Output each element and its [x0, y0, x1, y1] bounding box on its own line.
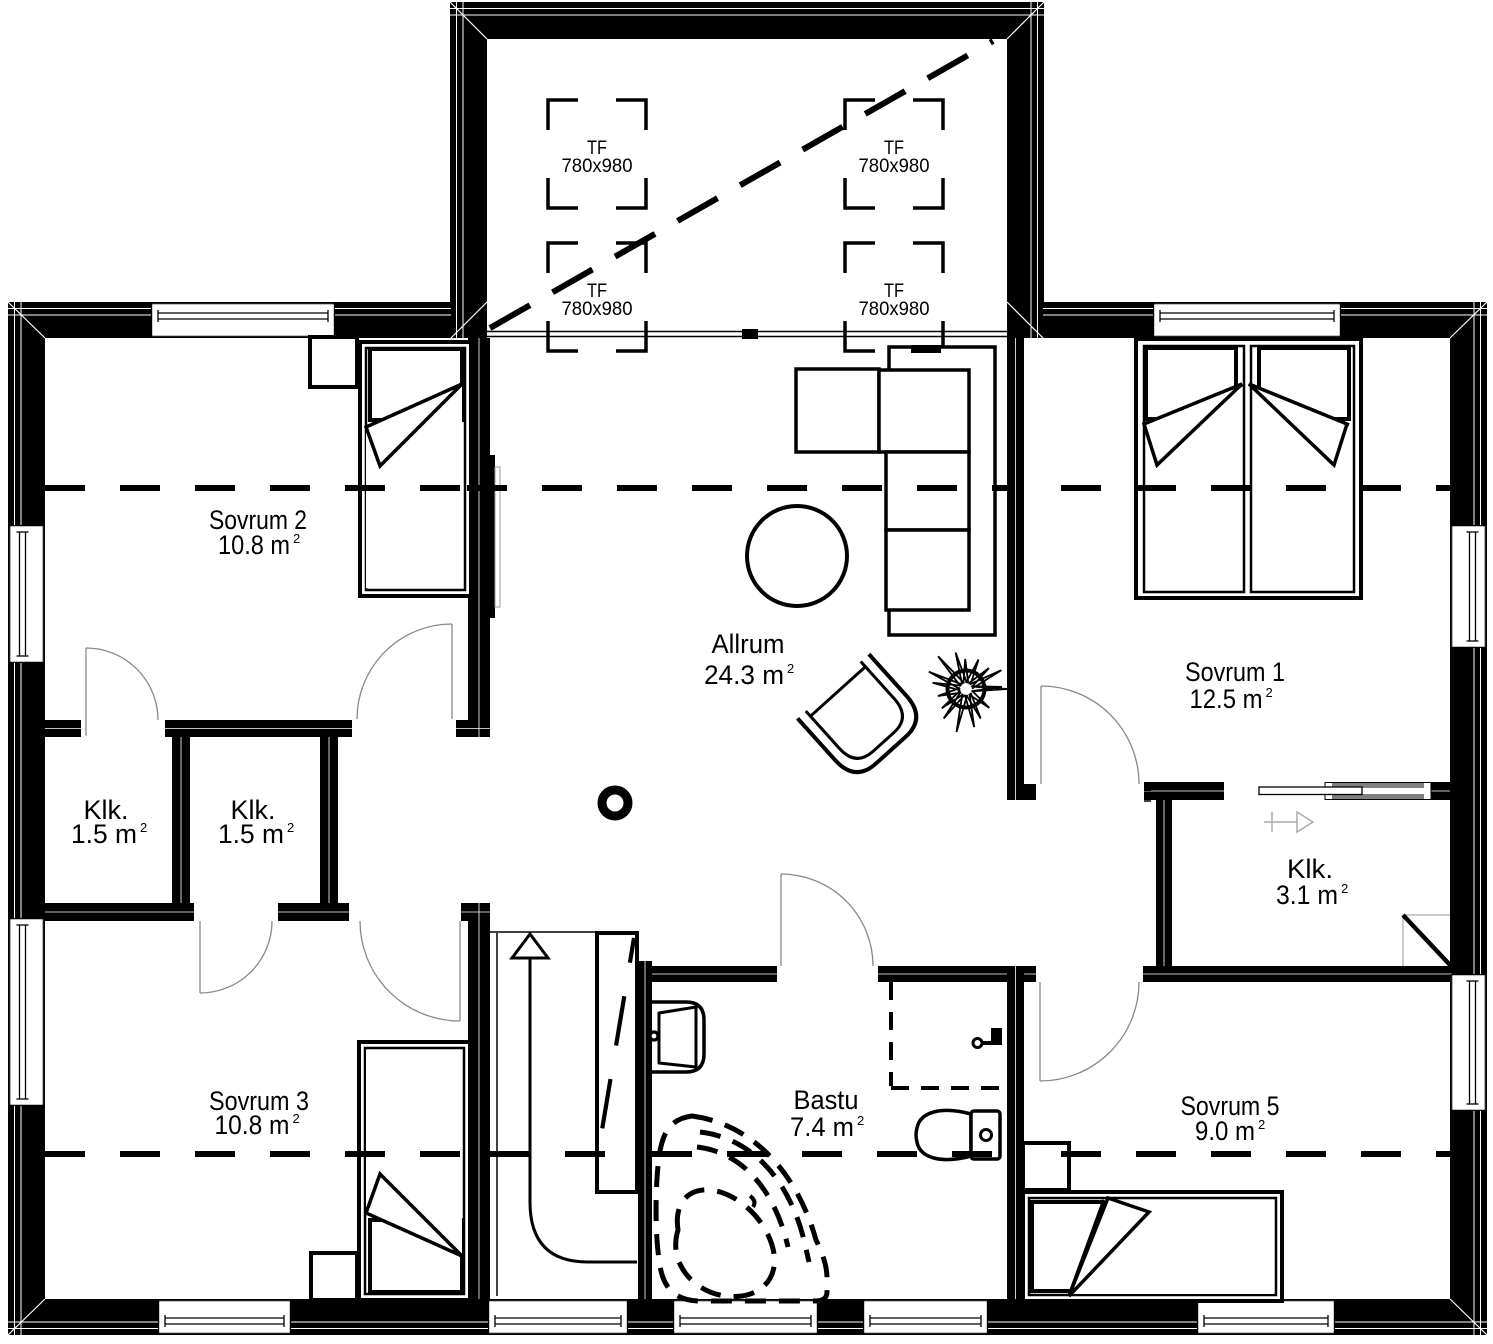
svg-text:2: 2	[1341, 881, 1348, 896]
svg-text:2: 2	[140, 820, 147, 835]
svg-text:10.8 m: 10.8 m	[218, 530, 290, 560]
svg-text:Allrum: Allrum	[712, 629, 785, 659]
svg-text:10.8 m: 10.8 m	[215, 1110, 290, 1140]
svg-text:2: 2	[1266, 685, 1273, 700]
svg-text:24.3 m: 24.3 m	[704, 660, 784, 690]
svg-text:2: 2	[287, 820, 294, 835]
svg-text:9.0 m: 9.0 m	[1195, 1116, 1255, 1146]
svg-text:780x980: 780x980	[562, 299, 633, 320]
svg-text:780x980: 780x980	[859, 156, 930, 177]
svg-text:2: 2	[293, 531, 300, 546]
svg-text:780x980: 780x980	[859, 299, 930, 320]
svg-text:3.1 m: 3.1 m	[1276, 880, 1338, 910]
svg-text:2: 2	[1258, 1117, 1265, 1132]
svg-text:12.5 m: 12.5 m	[1190, 684, 1263, 714]
svg-text:2: 2	[857, 1113, 864, 1128]
svg-text:2: 2	[787, 661, 794, 676]
svg-text:2: 2	[293, 1111, 300, 1126]
svg-text:780x980: 780x980	[562, 156, 633, 177]
svg-text:Bastu: Bastu	[794, 1085, 859, 1115]
svg-text:1.5 m: 1.5 m	[71, 819, 137, 849]
svg-text:1.5 m: 1.5 m	[218, 819, 284, 849]
svg-text:Sovrum 1: Sovrum 1	[1185, 657, 1285, 687]
svg-text:7.4 m: 7.4 m	[790, 1112, 854, 1142]
